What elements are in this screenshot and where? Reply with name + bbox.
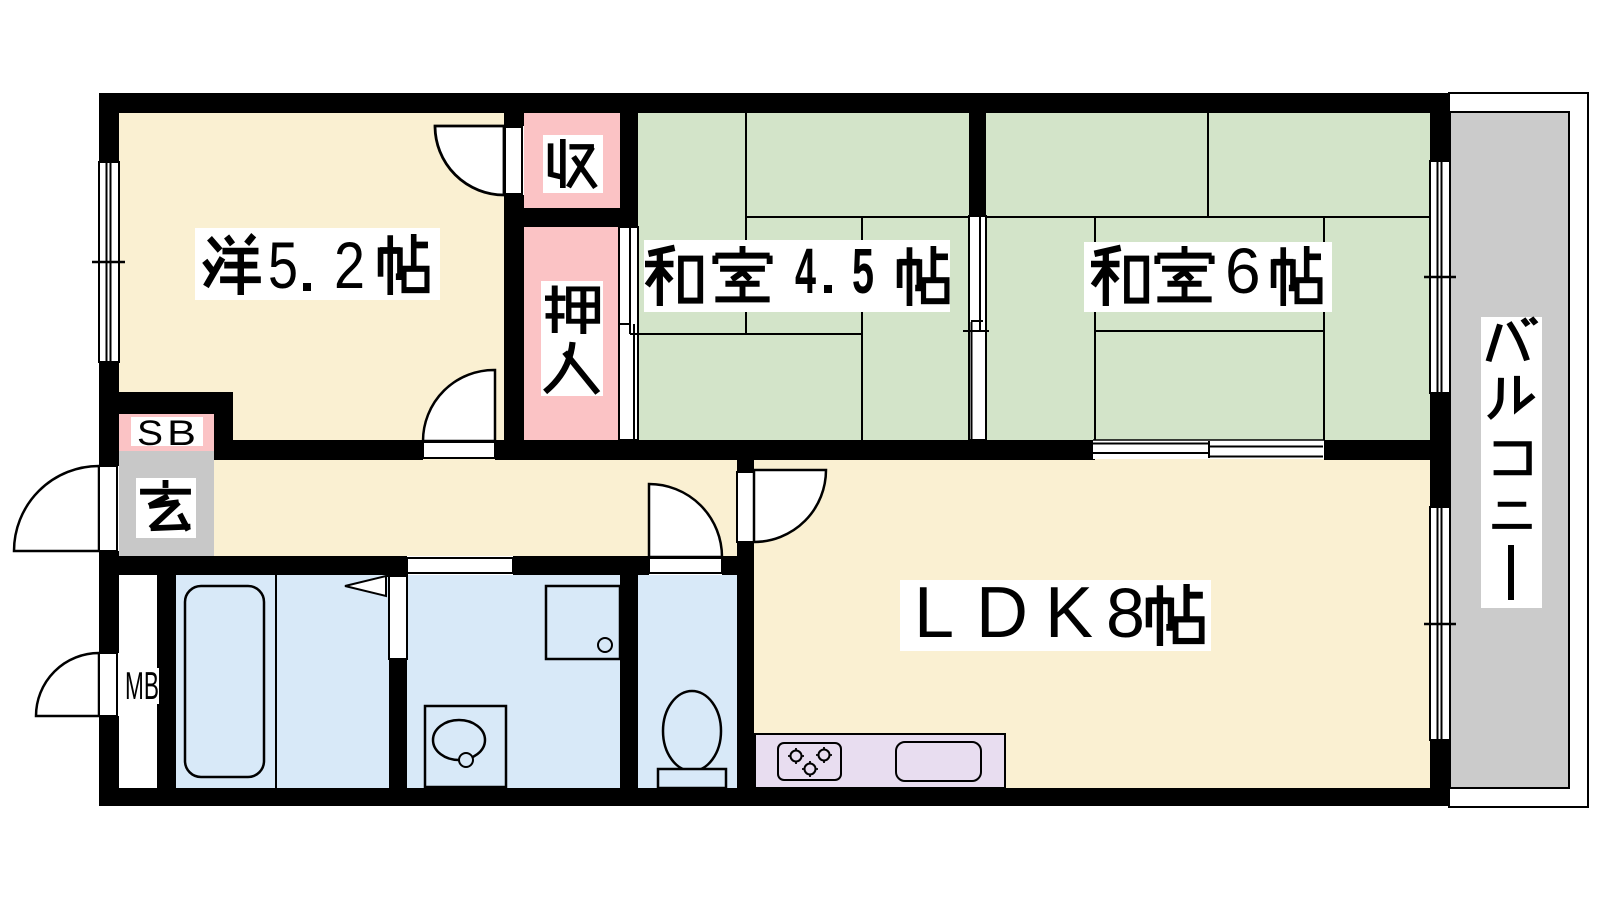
svg-text:K: K xyxy=(1045,573,1093,653)
svg-text:B: B xyxy=(167,414,196,453)
svg-text:5: 5 xyxy=(852,235,874,307)
svg-text:6: 6 xyxy=(1225,235,1261,307)
svg-text:2: 2 xyxy=(334,228,365,302)
svg-text:5: 5 xyxy=(268,228,298,302)
svg-text:D: D xyxy=(976,573,1028,653)
svg-text:MB: MB xyxy=(125,664,159,708)
svg-text:L: L xyxy=(914,573,954,653)
svg-text:4: 4 xyxy=(795,235,816,307)
svg-text:S: S xyxy=(137,414,163,453)
svg-text:8: 8 xyxy=(1106,574,1145,652)
